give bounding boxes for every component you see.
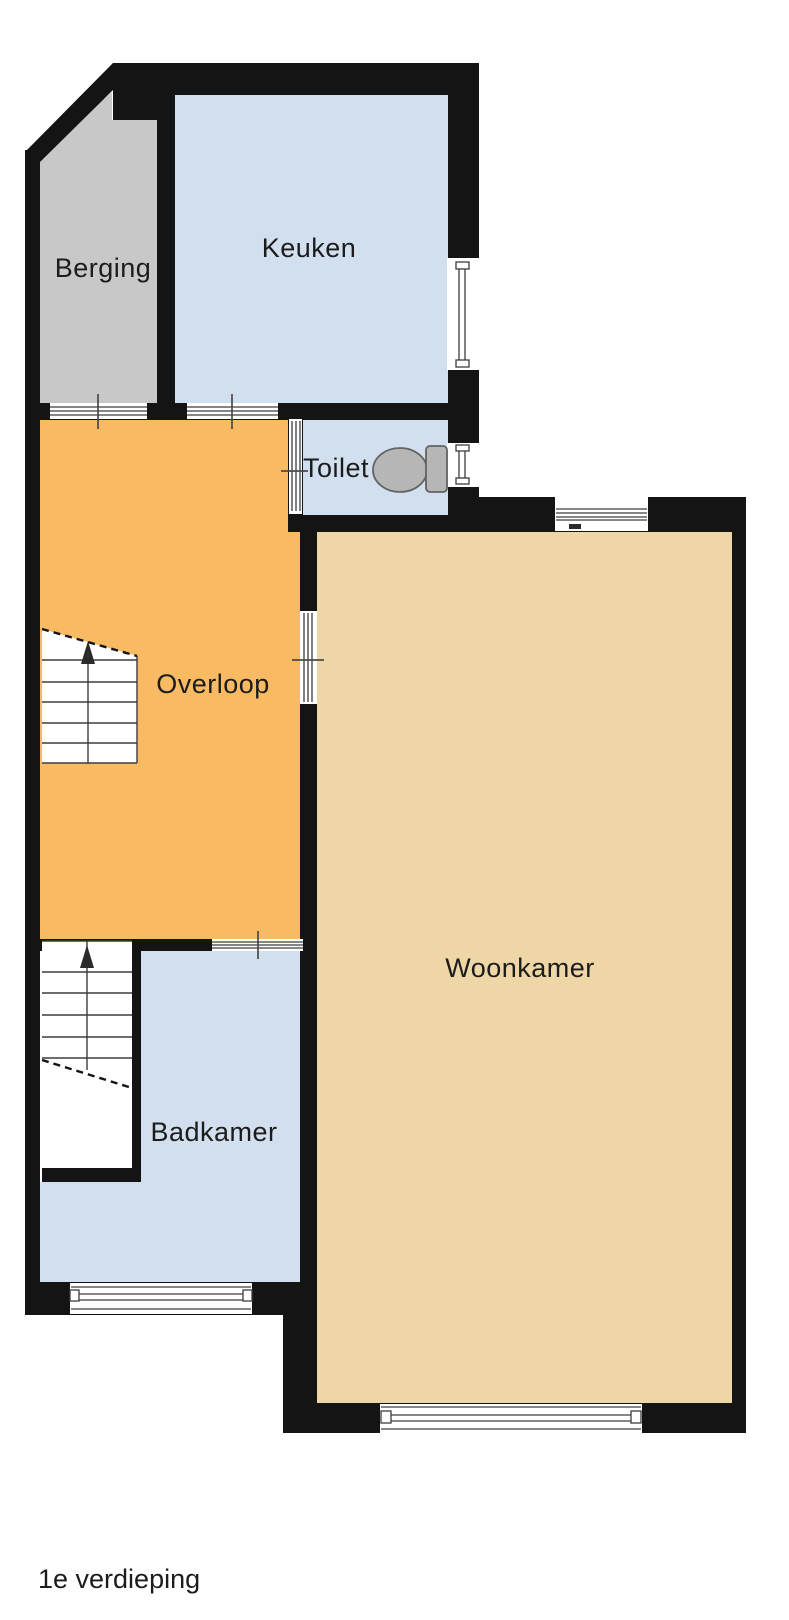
wall-stairs-bottom <box>42 1168 141 1182</box>
window-keuken-cap-bottom <box>456 360 469 367</box>
toilet-fixture-icon <box>373 446 447 492</box>
toilet-tank <box>426 446 447 492</box>
window-toilet-cap-bottom <box>456 478 469 484</box>
floorplan-page: Berging Keuken Toilet Overloop Woonkamer… <box>0 0 789 1620</box>
keuken-label: Keuken <box>262 233 357 263</box>
wall-left <box>25 150 40 1315</box>
overloop-label: Overloop <box>156 669 270 699</box>
wall-stairs-right <box>132 941 141 1182</box>
window-badkamer-cap-left <box>70 1290 79 1301</box>
badkamer-label: Badkamer <box>150 1117 277 1147</box>
floorplan-drawing: Berging Keuken Toilet Overloop Woonkamer… <box>0 0 789 1620</box>
window-woonkamer-north <box>555 497 648 531</box>
wall-berging-keuken <box>157 93 175 420</box>
toilet-label: Toilet <box>303 453 369 483</box>
wall-right <box>732 497 746 1433</box>
toilet-bowl <box>373 448 427 492</box>
window-woonkamer-north-sill-tick <box>569 524 581 529</box>
window-toilet-cap-top <box>456 445 469 451</box>
floor-title: 1e verdieping <box>38 1564 200 1594</box>
rooms <box>40 92 732 1403</box>
window-woonkamer-south-cap-right <box>631 1411 641 1423</box>
window-badkamer-cap-right <box>243 1290 252 1301</box>
window-keuken <box>447 258 479 370</box>
woonkamer-label: Woonkamer <box>445 953 595 983</box>
window-keuken-cap-top <box>456 262 469 269</box>
berging-label: Berging <box>55 253 152 283</box>
window-woonkamer-south-cap-left <box>381 1411 391 1423</box>
